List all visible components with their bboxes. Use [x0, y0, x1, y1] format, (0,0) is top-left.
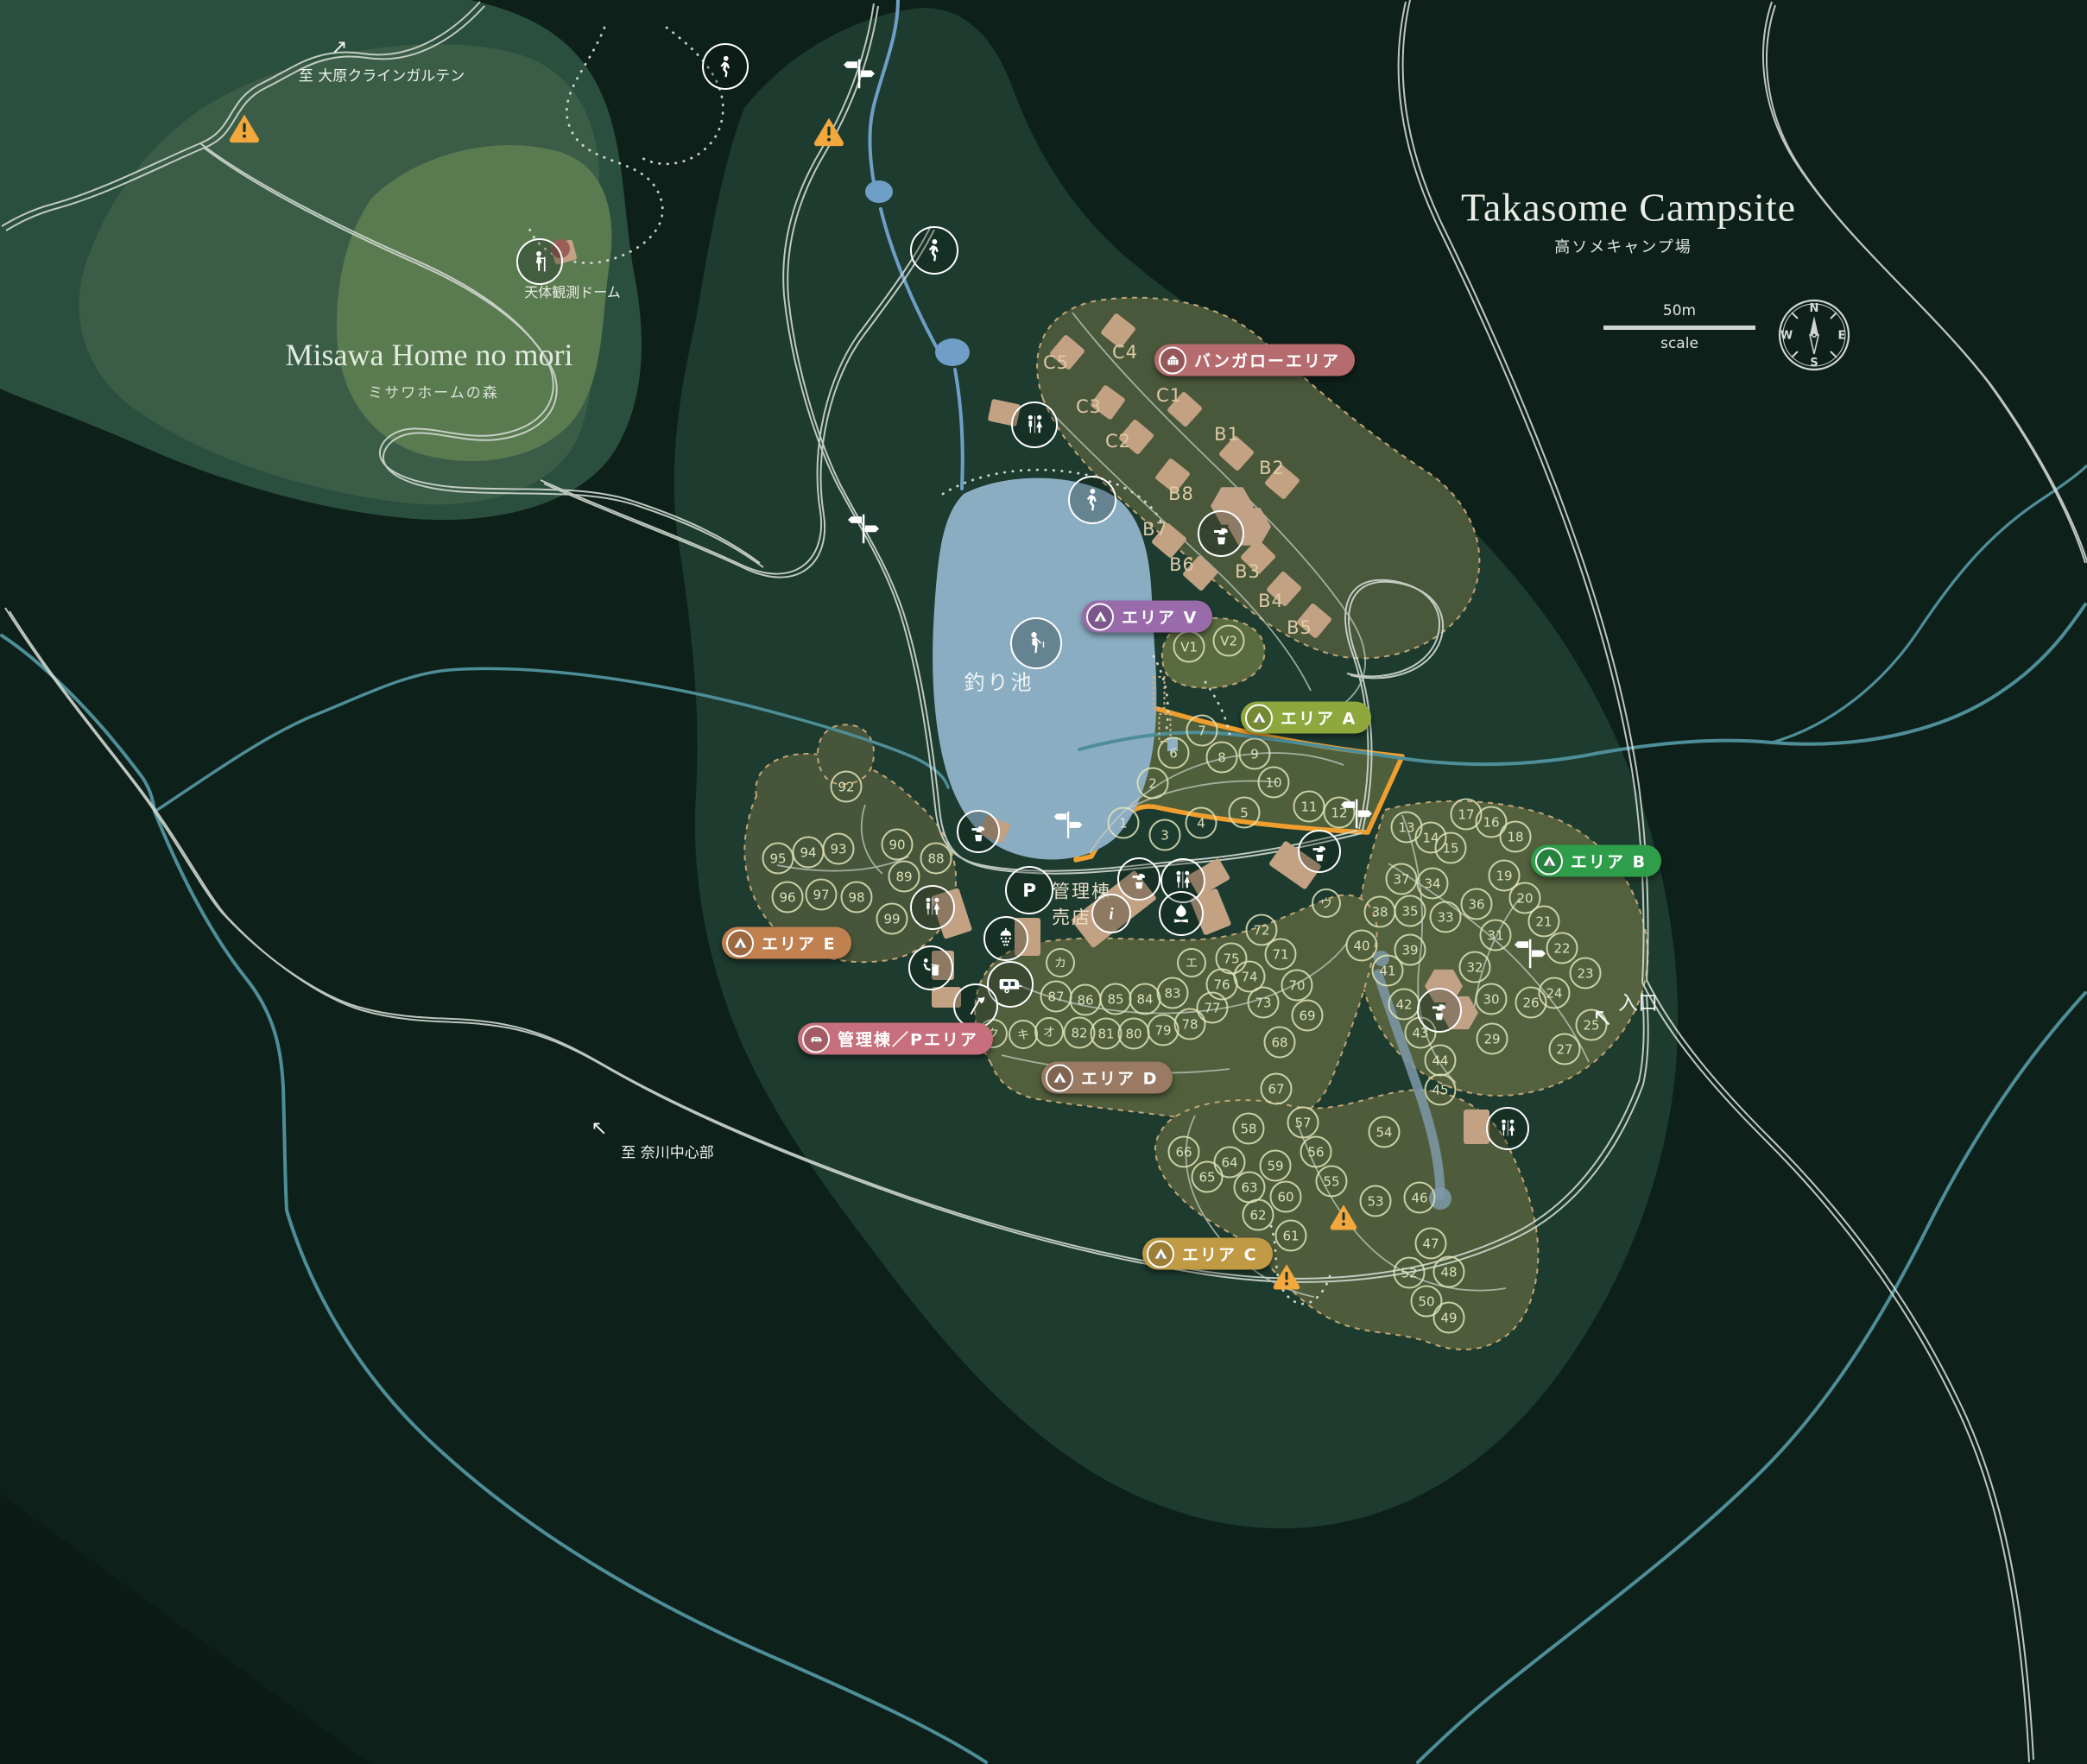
- fishing-icon: [1010, 617, 1062, 669]
- small-pond-1: [865, 180, 893, 203]
- scale-bar: [1603, 326, 1755, 330]
- site-marker-80: 80: [1118, 1018, 1150, 1050]
- scale-box: 50m scale: [1603, 302, 1755, 352]
- site-marker-82: 82: [1064, 1017, 1096, 1049]
- site-marker-42: 42: [1388, 989, 1420, 1021]
- site-marker-98: 98: [841, 882, 873, 914]
- walker-icon: [702, 43, 749, 90]
- site-marker-ウ: ウ: [1312, 888, 1341, 918]
- toilet-icon: [1486, 1107, 1529, 1150]
- site-marker-オ: オ: [1034, 1017, 1064, 1046]
- pond-label: 釣り池: [964, 666, 1034, 696]
- site-marker-45: 45: [1425, 1074, 1457, 1106]
- site-marker-38: 38: [1364, 896, 1396, 928]
- badge-area-e: エリア E: [722, 927, 851, 959]
- tap-icon: [957, 810, 1000, 853]
- site-marker-8: 8: [1206, 742, 1238, 774]
- site-marker-60: 60: [1270, 1181, 1302, 1213]
- direction-label-nagawa: 至 奈川中心部: [621, 1141, 713, 1162]
- site-marker-48: 48: [1433, 1256, 1465, 1288]
- site-marker-15: 15: [1435, 832, 1467, 864]
- site-marker-エ: エ: [1177, 948, 1206, 977]
- toilet-icon: [1011, 401, 1058, 448]
- walker-icon: [910, 226, 958, 275]
- direction-arrow-entrance: ↖: [1592, 1002, 1613, 1032]
- bungalow-label-B4: B4: [1258, 591, 1284, 611]
- site-marker-47: 47: [1415, 1228, 1447, 1260]
- tent-icon: [1046, 1064, 1073, 1091]
- signpost-icon: [1337, 793, 1376, 833]
- hiker-icon: [516, 238, 563, 285]
- badge-label-area-b: エリア B: [1571, 850, 1647, 873]
- site-marker-11: 11: [1293, 791, 1325, 823]
- site-marker-88: 88: [920, 843, 952, 875]
- site-marker-68: 68: [1264, 1027, 1296, 1059]
- site-marker-1: 1: [1108, 807, 1140, 839]
- tent-icon: [1245, 704, 1273, 731]
- site-marker-7: 7: [1186, 715, 1218, 747]
- direction-label-entrance: 入口: [1618, 986, 1658, 1015]
- badge-label-area-e: エリア E: [762, 932, 837, 955]
- direction-arrow-nagawa: ↖: [591, 1117, 607, 1140]
- badge-label-area-c: エリア C: [1182, 1242, 1258, 1266]
- bungalow-label-B5: B5: [1287, 617, 1312, 638]
- warning-icon: [1328, 1201, 1359, 1232]
- site-marker-62: 62: [1243, 1199, 1274, 1231]
- bungalow-label-C4: C4: [1112, 342, 1138, 363]
- forest-title-ja: ミサワホームの森: [368, 381, 499, 402]
- site-marker-85: 85: [1100, 983, 1132, 1015]
- site-marker-83: 83: [1157, 977, 1189, 1009]
- house-icon: [1159, 346, 1186, 374]
- site-marker-30: 30: [1476, 983, 1508, 1015]
- warning-icon: [1271, 1261, 1302, 1292]
- bungalow-label-B6: B6: [1169, 554, 1195, 575]
- trash-icon: [908, 945, 953, 990]
- bungalow-label-B2: B2: [1259, 458, 1285, 478]
- site-marker-87: 87: [1040, 981, 1072, 1013]
- site-marker-57: 57: [1287, 1107, 1319, 1139]
- site-marker-40: 40: [1346, 930, 1378, 962]
- warning-icon: [812, 114, 846, 149]
- badge-label-area-d: エリア D: [1081, 1066, 1158, 1090]
- direction-arrow-ohara: ↗: [331, 36, 347, 59]
- site-marker-70: 70: [1281, 970, 1313, 1002]
- site-marker-79: 79: [1148, 1015, 1179, 1046]
- site-marker-6: 6: [1158, 737, 1190, 769]
- site-marker-55: 55: [1316, 1166, 1348, 1198]
- site-marker-18: 18: [1500, 821, 1532, 853]
- site-marker-31: 31: [1480, 920, 1512, 952]
- site-marker-35: 35: [1394, 895, 1426, 927]
- info-icon: [1091, 894, 1131, 933]
- site-marker-92: 92: [831, 771, 863, 803]
- compass-needle-south: [1810, 335, 1818, 354]
- signpost-icon: [839, 54, 879, 93]
- site-marker-4: 4: [1186, 807, 1217, 839]
- walker-icon: [1068, 476, 1116, 524]
- compass-n: N: [1810, 302, 1819, 315]
- badge-area-d: エリア D: [1041, 1062, 1173, 1094]
- scale-word: scale: [1603, 335, 1755, 352]
- site-marker-93: 93: [823, 833, 855, 865]
- site-marker-94: 94: [793, 837, 825, 869]
- signpost-icon: [844, 509, 883, 548]
- bungalow-label-B1: B1: [1214, 424, 1240, 445]
- site-marker-26: 26: [1515, 987, 1547, 1019]
- site-marker-9: 9: [1239, 738, 1271, 770]
- site-marker-65: 65: [1192, 1161, 1224, 1193]
- badge-label-bungalow-area: バンガローエリア: [1194, 349, 1340, 372]
- site-marker-29: 29: [1477, 1023, 1508, 1055]
- site-marker-61: 61: [1275, 1220, 1307, 1252]
- bungalow-label-C3: C3: [1076, 396, 1102, 417]
- badge-management-p-area: 管理棟／Pエリア: [798, 1023, 993, 1055]
- bungalow-label-B3: B3: [1235, 561, 1261, 582]
- site-marker-72: 72: [1246, 914, 1278, 946]
- signpost-icon: [1510, 933, 1550, 973]
- warning-icon: [227, 111, 262, 145]
- site-marker-63: 63: [1234, 1172, 1266, 1204]
- site-marker-3: 3: [1149, 819, 1181, 851]
- tap-icon: [1417, 988, 1462, 1033]
- campfire-icon: [1159, 891, 1204, 936]
- site-marker-59: 59: [1260, 1150, 1292, 1182]
- site-marker-キ: キ: [1009, 1020, 1038, 1049]
- site-marker-78: 78: [1174, 1008, 1206, 1040]
- site-marker-5: 5: [1229, 797, 1261, 829]
- site-marker-58: 58: [1233, 1113, 1265, 1145]
- bungalow-label-B7: B7: [1142, 519, 1168, 540]
- site-marker-90: 90: [882, 829, 914, 861]
- bungalow-label-C2: C2: [1105, 431, 1131, 452]
- site-marker-95: 95: [762, 843, 794, 875]
- site-marker-41: 41: [1372, 955, 1404, 987]
- badge-area-v: エリア V: [1082, 601, 1212, 633]
- compass-s: S: [1810, 357, 1818, 370]
- compass-needle-north: [1810, 316, 1818, 335]
- badge-area-a: エリア A: [1241, 702, 1371, 734]
- tap-icon: [1298, 830, 1341, 873]
- site-marker-97: 97: [806, 879, 838, 911]
- scale-distance: 50m: [1603, 302, 1755, 319]
- compass-w: W: [1780, 330, 1793, 343]
- site-marker-99: 99: [876, 903, 908, 935]
- site-marker-27: 27: [1549, 1034, 1581, 1065]
- tent-icon: [726, 929, 754, 957]
- tent-icon: [1086, 603, 1114, 630]
- map-title: Takasome Campsite: [1461, 185, 1796, 231]
- site-marker-56: 56: [1300, 1136, 1332, 1168]
- site-marker-46: 46: [1404, 1182, 1436, 1214]
- site-marker-69: 69: [1292, 1000, 1324, 1032]
- terrain-observatory-field: [337, 145, 611, 461]
- campsite-map: P i Takasome Campsite 高ソメキャンプ場 Misawa Ho…: [0, 0, 2087, 1764]
- bungalow-label-C5: C5: [1043, 352, 1069, 373]
- site-marker-22: 22: [1546, 933, 1578, 964]
- badge-area-b: エリア B: [1531, 845, 1661, 877]
- axe-icon: [953, 983, 998, 1028]
- shower-icon: [983, 916, 1028, 961]
- tap-icon: [1198, 510, 1244, 557]
- site-marker-50: 50: [1411, 1286, 1443, 1318]
- signpost-icon: [1050, 806, 1086, 843]
- site-marker-36: 36: [1461, 888, 1493, 920]
- site-marker-10: 10: [1258, 767, 1290, 799]
- bungalow-label-B8: B8: [1168, 484, 1194, 504]
- site-marker-86: 86: [1070, 984, 1102, 1016]
- tent-icon: [1535, 847, 1563, 875]
- site-marker-2: 2: [1137, 768, 1169, 800]
- site-marker-カ: カ: [1046, 948, 1075, 977]
- forest-title: Misawa Home no mori: [286, 337, 573, 373]
- site-marker-66: 66: [1168, 1136, 1200, 1168]
- site-marker-34: 34: [1417, 868, 1449, 900]
- badge-label-management-p-area: 管理棟／Pエリア: [838, 1027, 978, 1051]
- car-icon: [802, 1025, 830, 1053]
- site-marker-32: 32: [1459, 952, 1491, 983]
- bungalow-label-C1: C1: [1156, 385, 1182, 406]
- toilet-icon: [910, 885, 955, 930]
- site-marker-53: 53: [1360, 1185, 1392, 1217]
- site-marker-96: 96: [772, 882, 804, 914]
- badge-bungalow-area: バンガローエリア: [1154, 345, 1355, 376]
- map-title-ja: 高ソメキャンプ場: [1554, 235, 1692, 257]
- compass-e: E: [1838, 330, 1846, 343]
- compass-rose: N E S W: [1775, 296, 1853, 374]
- site-marker-V2: V2: [1213, 625, 1245, 657]
- site-marker-54: 54: [1369, 1116, 1401, 1148]
- badge-label-area-v: エリア V: [1122, 605, 1198, 629]
- site-marker-23: 23: [1570, 958, 1602, 989]
- site-marker-84: 84: [1129, 983, 1161, 1015]
- badge-area-c: エリア C: [1142, 1238, 1273, 1270]
- site-marker-67: 67: [1261, 1073, 1293, 1105]
- site-marker-33: 33: [1430, 901, 1462, 933]
- site-marker-44: 44: [1425, 1045, 1457, 1077]
- badge-label-area-a: エリア A: [1281, 706, 1357, 730]
- site-marker-V1: V1: [1173, 631, 1205, 663]
- site-marker-17: 17: [1451, 799, 1483, 831]
- tent-icon: [1147, 1240, 1174, 1268]
- direction-label-ohara: 至 大原クラインガルテン: [299, 64, 465, 85]
- parking-icon: [1005, 866, 1053, 914]
- tap-icon: [1117, 857, 1160, 901]
- site-marker-52: 52: [1394, 1257, 1426, 1289]
- site-marker-89: 89: [889, 861, 920, 893]
- site-marker-37: 37: [1386, 863, 1418, 895]
